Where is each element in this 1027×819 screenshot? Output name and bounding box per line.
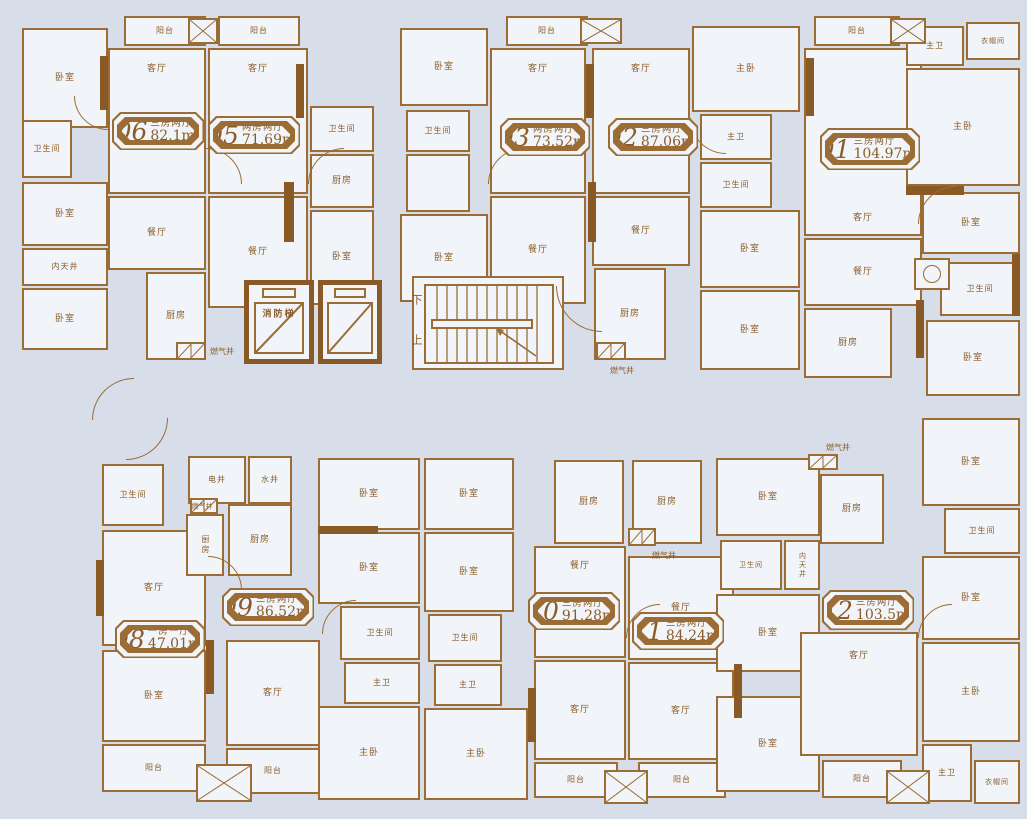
unit-label-frame: 03两房两厅73.52m² [505, 123, 585, 151]
room-label: 客厅 [671, 707, 691, 716]
room-label: 卫生间 [723, 181, 750, 189]
service-platform [188, 18, 218, 44]
wall-segment [586, 64, 594, 118]
unit-info: 三房两厅87.06m² [641, 125, 700, 150]
room-label: 主卧 [736, 65, 756, 74]
unit-info: 三房两厅86.52m² [256, 595, 315, 620]
room-label: 主卫 [727, 133, 745, 141]
unit-label-08: 08一房一厅47.01m² [115, 620, 205, 658]
room-master-bedroom: 主卧 [692, 26, 800, 112]
unit-number: 01 [819, 137, 851, 162]
room-label: 卧室 [359, 490, 379, 499]
unit-number: 03 [498, 125, 530, 150]
room-label: 厨房 [620, 310, 640, 319]
room-master-bedroom: 主卧 [906, 68, 1020, 186]
room-label: 卧室 [144, 692, 164, 701]
room-bedroom: 卧室 [922, 418, 1020, 506]
room-bedroom: 卧室 [700, 290, 800, 370]
unit-type: 两房两厅 [533, 125, 575, 135]
room-bedroom: 卧室 [424, 532, 514, 612]
unit-type: 三房两厅 [666, 619, 708, 629]
room-label: 卧室 [961, 594, 981, 603]
room-label: 卧室 [434, 254, 454, 263]
wall-segment [318, 526, 378, 534]
unit-label-03: 03两房两厅73.52m² [500, 118, 590, 156]
room-label: 阳台 [250, 27, 268, 35]
staircase-glyph [424, 284, 554, 364]
room-label: 卧室 [740, 245, 760, 254]
room-label: 主卧 [359, 749, 379, 758]
unit-label-frame: 12三房两厅103.5m² [827, 595, 909, 625]
room-bathroom: 卫生间 [428, 614, 502, 662]
unit-label-frame: 11三房两厅84.24m² [634, 614, 723, 649]
unit-type: 三房两厅 [150, 119, 192, 129]
unit-label-frame: 06三房两厅82.1m² [117, 117, 199, 145]
unit-label-frame: 10三房两厅91.28m² [528, 592, 620, 630]
wall-segment [206, 640, 214, 694]
unit-area: 86.52m² [256, 605, 315, 619]
unit-area: 87.06m² [641, 135, 700, 149]
room-balcony: 阳台 [814, 16, 900, 46]
unit-label-frame: 06三房两厅82.1m² [114, 114, 203, 149]
room-label: 卫生间 [739, 562, 763, 569]
unit-area: 103.5m² [856, 608, 915, 622]
room-label: 内天井 [799, 552, 806, 579]
room-bathroom: 卫生间 [406, 110, 470, 152]
unit-area: 82.1m² [150, 129, 200, 143]
unit-label-frame: 12三房两厅103.5m² [822, 590, 914, 630]
room-bathroom: 卫生间 [944, 508, 1020, 554]
room-label: 主卫 [459, 681, 477, 689]
unit-info: 一房一厅47.01m² [148, 627, 207, 652]
unit-type: 三房两厅 [562, 599, 604, 609]
gas-shaft-label: 燃气井 [192, 504, 213, 511]
gas-shaft-label: 燃气井 [652, 552, 676, 560]
gas-shaft-label: 燃气井 [210, 348, 234, 356]
unit-number: 09 [221, 595, 253, 620]
wall-segment [284, 182, 294, 242]
fire-elevator: 消防梯 [244, 280, 314, 364]
room-label: 客厅 [144, 584, 164, 593]
room-master-bathroom: 主卫 [434, 664, 502, 706]
gas-shaft [628, 528, 656, 546]
unit-label-10: 10三房两厅91.28m² [528, 592, 620, 630]
unit-number: 08 [113, 627, 145, 652]
unit-label-frame: 02三房两厅87.06m² [618, 128, 688, 146]
unit-type: 一房一厅 [148, 627, 190, 637]
room-cloakroom: 衣帽间 [974, 760, 1020, 804]
unit-label-frame: 02三房两厅87.06m² [610, 120, 697, 155]
room-label: 电井 [208, 476, 226, 484]
unit-label-frame: 01三房两厅104.97m² [830, 138, 910, 160]
unit-info: 三房两厅103.5m² [856, 598, 915, 623]
door-arc [126, 418, 168, 460]
unit-label-frame: 08一房一厅47.01m² [115, 620, 205, 658]
unit-label-06: 06三房两厅82.1m² [112, 112, 204, 150]
service-platform [196, 764, 252, 802]
room-kitchen: 厨房 [554, 460, 624, 544]
elevator [318, 280, 382, 364]
unit-area: 84.24m² [666, 629, 725, 643]
room-dining-room: 餐厅 [108, 196, 206, 270]
unit-type: 三房两厅 [641, 125, 683, 135]
room-label: 卫生间 [425, 127, 452, 135]
service-platform [886, 770, 930, 804]
room-bathroom: 卫生间 [700, 162, 772, 208]
room-label: 客厅 [853, 214, 873, 223]
unit-info: 三房两厅82.1m² [150, 119, 200, 144]
room-label: 客厅 [849, 652, 869, 661]
unit-label-frame: 08一房一厅47.01m² [120, 625, 200, 653]
door-arc [322, 600, 356, 634]
room-bathroom: 卫生间 [22, 120, 72, 178]
unit-label-01: 01三房两厅104.97m² [820, 128, 920, 170]
unit-label-frame: 12三房两厅103.5m² [824, 592, 913, 629]
unit-area: 104.97m² [853, 147, 921, 161]
room-label: 客厅 [263, 689, 283, 698]
room-living-room: 客厅 [226, 640, 320, 746]
room-label: 卧室 [359, 564, 379, 573]
room-label: 阳台 [538, 27, 556, 35]
room-master-bedroom: 主卧 [922, 642, 1020, 742]
unit-label-12: 12三房两厅103.5m² [822, 590, 914, 630]
unit-area: 47.01m² [148, 637, 207, 651]
room-cloakroom: 衣帽间 [966, 22, 1020, 60]
room-label: 主卧 [953, 123, 973, 132]
unit-label-frame: 08一房一厅47.01m² [125, 630, 195, 648]
room-light-well: 内天井 [784, 540, 820, 590]
room-label: 餐厅 [528, 246, 548, 255]
room-label: 厨房 [657, 498, 677, 507]
room-label: 餐厅 [147, 229, 167, 238]
room-label: 水井 [261, 476, 279, 484]
staircase [424, 284, 554, 364]
room-label: 卧室 [758, 493, 778, 502]
unit-label-frame: 05两房两厅71.69m² [210, 118, 299, 153]
room-label: 阳台 [264, 767, 282, 775]
unit-type: 三房两厅 [256, 595, 298, 605]
unit-number: 06 [116, 119, 148, 144]
room-label: 阳台 [673, 776, 691, 784]
unit-info: 三房两厅104.97m² [853, 137, 921, 162]
room-label: 厨房 [250, 536, 270, 545]
unit-type: 三房两厅 [856, 598, 898, 608]
unit-info: 两房两厅71.69m² [242, 123, 301, 148]
room-label: 阳台 [848, 27, 866, 35]
fire-elevator-label: 消防梯 [262, 307, 295, 320]
room-label: 衣帽间 [981, 38, 1005, 45]
unit-number: 12 [821, 598, 853, 623]
room-label: 客厅 [147, 65, 167, 74]
unit-type: 两房两厅 [242, 123, 284, 133]
unit-info: 三房两厅91.28m² [562, 599, 621, 624]
room-living-room: 客厅 [534, 660, 626, 760]
service-platform [604, 770, 648, 804]
room-label: 厨房 [166, 312, 186, 321]
room-label: 阳台 [156, 27, 174, 35]
room-bedroom: 卧室 [424, 458, 514, 530]
room-label: 主卫 [938, 769, 956, 777]
room-label: 卫生间 [329, 125, 356, 133]
room-label: 餐厅 [248, 248, 268, 257]
room-bedroom: 卧室 [400, 28, 488, 106]
gas-shaft-label: 燃气井 [610, 367, 634, 375]
wall-segment [916, 300, 924, 358]
unit-number: 05 [207, 123, 239, 148]
room-bedroom: 卧室 [716, 458, 820, 536]
room-label: 卧室 [459, 568, 479, 577]
room-label: 卧室 [434, 63, 454, 72]
unit-label-frame: 10三房两厅91.28m² [538, 602, 610, 620]
unit-label-frame: 10三房两厅91.28m² [533, 597, 615, 625]
room-utility [406, 154, 470, 212]
room-label: 主卫 [926, 42, 944, 50]
room-bedroom: 卧室 [926, 320, 1020, 396]
room-label: 主卫 [373, 679, 391, 687]
door-arc [92, 378, 134, 420]
room-label: 阳台 [567, 776, 585, 784]
unit-label-frame: 09三房两厅86.52m² [232, 598, 304, 616]
room-label: 卫生间 [452, 634, 479, 642]
unit-label-frame: 05两房两厅71.69m² [208, 116, 300, 154]
room-label: 厨房 [201, 535, 209, 555]
room-label: 餐厅 [570, 562, 590, 571]
room-label: 主卧 [961, 688, 981, 697]
room-label: 卧室 [740, 326, 760, 335]
unit-label-frame: 01三房两厅104.97m² [820, 128, 920, 170]
room-label: 卧室 [459, 490, 479, 499]
room-label: 卫生间 [967, 285, 994, 293]
elevator-glyph [249, 285, 309, 359]
unit-info: 三房两厅84.24m² [666, 619, 725, 644]
room-bedroom: 卧室 [318, 458, 420, 530]
room-label: 衣帽间 [985, 779, 1009, 786]
room-balcony: 阳台 [102, 744, 206, 792]
gas-shaft-label: 燃气井 [826, 444, 850, 452]
room-bedroom: 卧室 [22, 288, 108, 350]
room-bathroom: 卫生间 [310, 106, 374, 152]
room-dining-room: 餐厅 [592, 196, 690, 266]
room-label: 卧室 [55, 315, 75, 324]
floor-plan: 卧室卫生间卧室内天井卧室阳台客厅餐厅厨房阳台客厅餐厅卫生间厨房卧室卧室卫生间卧室… [0, 0, 1027, 819]
room-label: 卧室 [55, 210, 75, 219]
wall-segment [1012, 254, 1020, 316]
unit-info: 两房两厅73.52m² [533, 125, 592, 150]
wall-segment [296, 64, 304, 118]
unit-label-frame: 10三房两厅91.28m² [530, 594, 619, 629]
gas-shaft [596, 342, 626, 360]
room-label: 厨房 [579, 498, 599, 507]
room-label: 卫生间 [367, 629, 394, 637]
unit-label-frame: 11三房两厅84.24m² [632, 612, 724, 650]
room-label: 卧室 [332, 253, 352, 262]
unit-number: 02 [606, 125, 638, 150]
elevator-glyph [323, 285, 377, 359]
unit-area: 91.28m² [562, 609, 621, 623]
unit-area: 73.52m² [533, 135, 592, 149]
unit-label-frame: 01三房两厅104.97m² [825, 133, 915, 165]
room-bathroom: 卫生间 [102, 464, 164, 526]
room-kitchen: 厨房 [820, 474, 884, 544]
unit-label-11: 11三房两厅84.24m² [632, 612, 724, 650]
room-label: 厨房 [842, 505, 862, 514]
room-light-well: 内天井 [22, 248, 108, 286]
washing-machine-drum [923, 265, 941, 283]
room-bathroom: 卫生间 [720, 540, 782, 590]
unit-label-frame: 01三房两厅104.97m² [822, 130, 919, 169]
gas-shaft [176, 342, 206, 360]
room-label: 卧室 [961, 458, 981, 467]
wall-segment [734, 664, 742, 718]
room-bedroom: 卧室 [22, 182, 108, 246]
room-label: 卧室 [963, 354, 983, 363]
stairs-down-label: 下 [412, 295, 423, 306]
unit-label-frame: 05两房两厅71.69m² [218, 126, 290, 144]
room-label: 客厅 [570, 706, 590, 715]
unit-label-frame: 09三房两厅86.52m² [224, 590, 313, 625]
wall-segment [96, 560, 104, 616]
unit-label-frame: 03两房两厅73.52m² [510, 128, 580, 146]
room-label: 阳台 [145, 764, 163, 772]
unit-label-09: 09三房两厅86.52m² [222, 588, 314, 626]
room-bathroom: 卫生间 [940, 262, 1020, 316]
room-kitchen: 厨房 [804, 308, 892, 378]
room-electric-shaft: 电井 [188, 456, 246, 504]
unit-label-frame: 11三房两厅84.24m² [642, 622, 714, 640]
room-label: 客厅 [248, 65, 268, 74]
room-label: 内天井 [52, 263, 79, 271]
room-label: 卧室 [55, 74, 75, 83]
wall-segment [588, 182, 596, 242]
room-living-room: 客厅 [800, 632, 918, 756]
room-bedroom: 卧室 [318, 532, 420, 604]
unit-number: 11 [631, 619, 663, 644]
service-platform [580, 18, 622, 44]
room-label: 餐厅 [631, 227, 651, 236]
room-bedroom: 卧室 [700, 210, 800, 288]
room-dining-room: 餐厅 [804, 238, 922, 306]
room-label: 阳台 [853, 775, 871, 783]
room-label: 客厅 [528, 65, 548, 74]
room-master-bathroom: 主卫 [344, 662, 420, 704]
unit-label-frame: 08一房一厅47.01m² [117, 622, 204, 657]
room-label: 客厅 [631, 65, 651, 74]
room-bedroom: 卧室 [102, 650, 206, 742]
room-label: 卧室 [758, 629, 778, 638]
unit-label-02: 02三房两厅87.06m² [608, 118, 698, 156]
room-balcony: 阳台 [638, 762, 726, 798]
room-label: 卫生间 [120, 491, 147, 499]
wall-segment [528, 688, 536, 742]
unit-label-frame: 09三房两厅86.52m² [227, 593, 309, 621]
room-balcony: 阳台 [218, 16, 300, 46]
stairs-up-label: 上 [412, 335, 423, 346]
room-label: 主卧 [466, 750, 486, 759]
room-master-bedroom: 主卧 [318, 706, 420, 800]
unit-number: 10 [527, 599, 559, 624]
room-label: 卧室 [758, 740, 778, 749]
unit-label-frame: 02三房两厅87.06m² [613, 123, 693, 151]
room-label: 卫生间 [969, 527, 996, 535]
unit-label-frame: 05两房两厅71.69m² [213, 121, 295, 149]
unit-label-frame: 06三房两厅82.1m² [122, 122, 194, 140]
room-kitchen: 厨房 [228, 504, 292, 576]
room-water-shaft: 水井 [248, 456, 292, 504]
unit-label-frame: 09三房两厅86.52m² [222, 588, 314, 626]
gas-shaft [808, 454, 838, 470]
room-label: 厨房 [838, 339, 858, 348]
unit-label-05: 05两房两厅71.69m² [208, 116, 300, 154]
unit-label-frame: 11三房两厅84.24m² [637, 617, 719, 645]
unit-label-frame: 12三房两厅103.5m² [832, 600, 904, 620]
room-label: 餐厅 [853, 268, 873, 277]
room-balcony: 阳台 [506, 16, 588, 46]
room-master-bedroom: 主卧 [424, 708, 528, 800]
unit-label-frame: 02三房两厅87.06m² [608, 118, 698, 156]
service-platform [890, 18, 926, 44]
unit-label-frame: 06三房两厅82.1m² [112, 112, 204, 150]
washing-machine [914, 258, 950, 290]
room-label: 卫生间 [34, 145, 61, 153]
unit-type: 三房两厅 [853, 137, 895, 147]
unit-label-frame: 03两房两厅73.52m² [500, 118, 590, 156]
unit-label-frame: 03两房两厅73.52m² [502, 120, 589, 155]
room-label: 卧室 [961, 219, 981, 228]
unit-area: 71.69m² [242, 133, 301, 147]
wall-segment [806, 58, 814, 116]
